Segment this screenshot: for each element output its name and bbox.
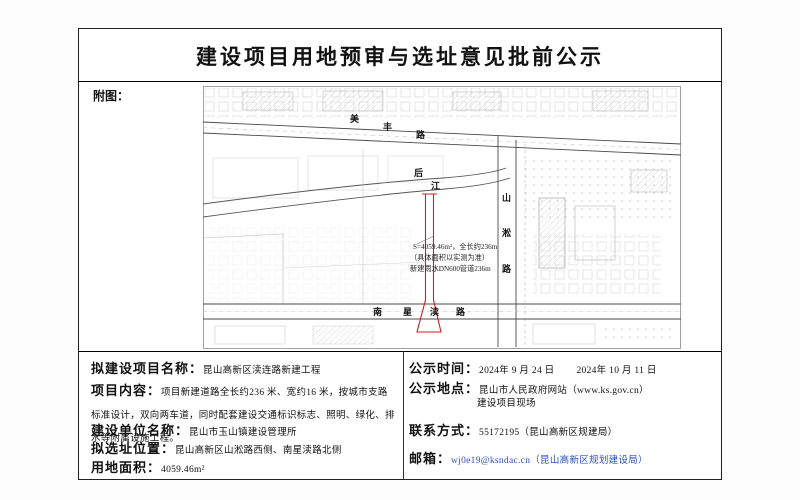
river-char-2: 江 bbox=[431, 180, 440, 191]
road-right-char-1: 山 bbox=[502, 192, 511, 203]
field-publicity-time: 公示时间：2024年 9 月 24 日2024年 10 月 11 日 bbox=[409, 359, 657, 379]
site-map: S=4059.46m²，全长约236m （具体面积以实测为准） 新建雨水DN60… bbox=[203, 86, 681, 349]
column-divider bbox=[403, 351, 404, 480]
field-email-value[interactable]: wj0e19@ksndac.cn（昆山高新区规划建设局） bbox=[451, 456, 648, 466]
field-project-name-value: 昆山高新区渎连路新建工程 bbox=[203, 366, 321, 376]
publicity-place-line1: 昆山市人民政府网站（www.ks.gov.cn） bbox=[479, 386, 649, 396]
page-title: 建设项目用地预审与选址意见批前公示 bbox=[79, 41, 721, 71]
river-char-1: 后 bbox=[414, 167, 423, 178]
road-right-char-2: 淞 bbox=[502, 227, 511, 238]
field-project-name: 拟建设项目名称：昆山高新区渎连路新建工程 bbox=[91, 359, 321, 379]
road-top-char-1: 美 bbox=[350, 113, 360, 124]
field-publicity-time-label: 公示时间： bbox=[409, 361, 479, 376]
road-top-char-3: 路 bbox=[416, 129, 426, 140]
field-construction-unit: 建设单位名称：昆山市玉山镇建设管理所 bbox=[91, 421, 297, 441]
field-contact-label: 联系方式： bbox=[409, 423, 479, 438]
field-land-area-label: 用地面积： bbox=[91, 460, 161, 475]
publicity-end-date: 2024年 10 月 11 日 bbox=[576, 366, 656, 376]
field-proposed-location: 拟选址位置：昆山高新区山淞路西侧、南星渎路北侧 bbox=[91, 439, 342, 459]
field-land-area: 用地面积：4059.46m² bbox=[91, 458, 205, 478]
publicity-start-date: 2024年 9 月 24 日 bbox=[479, 366, 554, 376]
road-top-char-2: 丰 bbox=[383, 121, 392, 132]
road-bottom-char-2: 星 bbox=[403, 307, 412, 317]
field-contact-value: 55172195（昆山高新区规建局） bbox=[479, 428, 617, 438]
field-publicity-place: 公示地点：昆山市人民政府网站（www.ks.gov.cn） 建设项目现场 bbox=[409, 379, 709, 411]
field-email: 邮箱：wj0e19@ksndac.cn（昆山高新区规划建设局） bbox=[409, 449, 648, 469]
field-proposed-location-value: 昆山高新区山淞路西侧、南星渎路北侧 bbox=[175, 446, 342, 456]
field-project-content-label: 项目内容： bbox=[91, 383, 161, 398]
publicity-place-line2: 建设项目现场 bbox=[477, 399, 709, 411]
public-notice-document: 建设项目用地预审与选址意见批前公示 附图： bbox=[78, 28, 722, 480]
road-bottom-char-4: 路 bbox=[456, 306, 466, 317]
field-email-label: 邮箱： bbox=[409, 451, 451, 466]
field-project-name-label: 拟建设项目名称： bbox=[91, 361, 203, 376]
details-divider bbox=[79, 351, 721, 352]
map-caption: 附图： bbox=[93, 87, 129, 104]
map-annotation-line2: （具体面积以实测为准） bbox=[410, 253, 489, 262]
site-map-drawing: S=4059.46m²，全长约236m （具体面积以实测为准） 新建雨水DN60… bbox=[203, 86, 681, 349]
road-bottom-char-1: 南 bbox=[373, 306, 382, 317]
road-right-char-3: 路 bbox=[502, 263, 512, 274]
field-construction-unit-label: 建设单位名称： bbox=[91, 423, 189, 438]
title-divider bbox=[79, 81, 721, 82]
map-annotation-line1: S=4059.46m²，全长约236m bbox=[413, 242, 498, 251]
field-land-area-value: 4059.46m² bbox=[161, 465, 205, 475]
field-publicity-place-label: 公示地点： bbox=[409, 381, 479, 396]
field-proposed-location-label: 拟选址位置： bbox=[91, 441, 175, 456]
field-contact: 联系方式：55172195（昆山高新区规建局） bbox=[409, 421, 617, 441]
map-annotation-line3: 新建雨水DN600管道236m bbox=[410, 264, 491, 273]
road-bottom-char-3: 渎 bbox=[430, 306, 439, 317]
field-construction-unit-value: 昆山市玉山镇建设管理所 bbox=[189, 428, 297, 438]
